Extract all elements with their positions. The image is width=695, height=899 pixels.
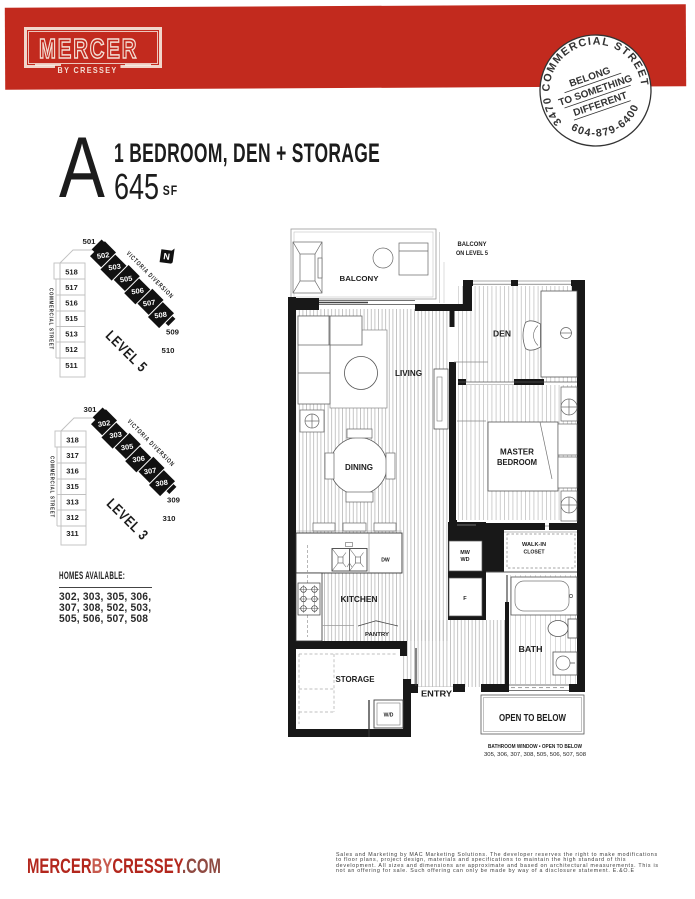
svg-text:BATH: BATH	[519, 644, 543, 654]
svg-text:512: 512	[65, 345, 78, 354]
svg-text:501: 501	[83, 237, 97, 246]
svg-text:315: 315	[66, 482, 79, 491]
svg-text:OPEN TO BELOW: OPEN TO BELOW	[499, 713, 566, 724]
svg-text:306: 306	[132, 454, 146, 465]
svg-text:317: 317	[66, 451, 79, 460]
svg-text:511: 511	[65, 361, 78, 370]
svg-text:DINING: DINING	[345, 462, 373, 472]
svg-text:312: 312	[66, 513, 79, 522]
svg-text:BALCONY: BALCONY	[340, 274, 379, 283]
svg-text:309: 309	[167, 496, 180, 505]
svg-text:WD: WD	[461, 557, 470, 563]
svg-text:PANTRY: PANTRY	[365, 632, 389, 638]
svg-text:503: 503	[108, 262, 122, 273]
svg-text:316: 316	[66, 466, 79, 475]
svg-text:BATHROOM WINDOW • OPEN TO BELO: BATHROOM WINDOW • OPEN TO BELOW	[488, 744, 583, 750]
svg-text:508: 508	[154, 310, 168, 321]
svg-text:CLOSET: CLOSET	[524, 550, 545, 556]
svg-text:N: N	[163, 251, 171, 262]
svg-text:LIVING: LIVING	[395, 368, 422, 378]
svg-text:KITCHEN: KITCHEN	[341, 594, 378, 604]
svg-text:BALCONY: BALCONY	[458, 241, 488, 248]
svg-text:311: 311	[66, 529, 79, 538]
svg-text:301: 301	[84, 405, 98, 414]
svg-text:318: 318	[66, 435, 79, 444]
svg-text:WALK-IN: WALK-IN	[522, 542, 546, 548]
svg-text:DW: DW	[381, 558, 390, 564]
svg-text:505: 505	[119, 274, 133, 285]
svg-text:LEVEL 5: LEVEL 5	[102, 328, 150, 376]
svg-text:307: 307	[143, 466, 157, 477]
svg-text:517: 517	[65, 283, 78, 292]
svg-text:507: 507	[142, 298, 156, 309]
svg-text:518: 518	[65, 267, 78, 276]
svg-text:STORAGE: STORAGE	[336, 674, 375, 684]
svg-text:308: 308	[155, 478, 169, 489]
svg-text:302: 302	[97, 418, 111, 429]
svg-text:W/D: W/D	[384, 713, 394, 719]
svg-text:F: F	[463, 596, 467, 602]
svg-text:510: 510	[162, 346, 175, 355]
svg-text:515: 515	[65, 314, 78, 323]
svg-text:305: 305	[120, 442, 134, 453]
svg-text:506: 506	[131, 286, 145, 297]
svg-text:310: 310	[163, 514, 176, 523]
svg-text:305, 306, 307, 308, 505, 506,: 305, 306, 307, 308, 505, 506, 507, 508	[484, 752, 586, 758]
svg-text:LEVEL 3: LEVEL 3	[103, 496, 151, 544]
svg-text:COMMERCIAL STREET: COMMERCIAL STREET	[49, 456, 55, 518]
svg-text:MW: MW	[460, 550, 470, 556]
svg-text:MASTER: MASTER	[500, 447, 534, 457]
svg-text:303: 303	[109, 430, 123, 441]
svg-text:513: 513	[65, 329, 78, 338]
svg-text:ENTRY: ENTRY	[421, 689, 452, 699]
svg-text:DEN: DEN	[493, 329, 511, 339]
svg-text:313: 313	[66, 497, 79, 506]
svg-text:516: 516	[65, 298, 78, 307]
svg-text:509: 509	[166, 328, 179, 337]
svg-text:BEDROOM: BEDROOM	[497, 457, 537, 467]
svg-text:ON LEVEL 5: ON LEVEL 5	[456, 250, 488, 257]
svg-text:502: 502	[96, 250, 110, 261]
svg-text:COMMERCIAL STREET: COMMERCIAL STREET	[48, 288, 54, 350]
